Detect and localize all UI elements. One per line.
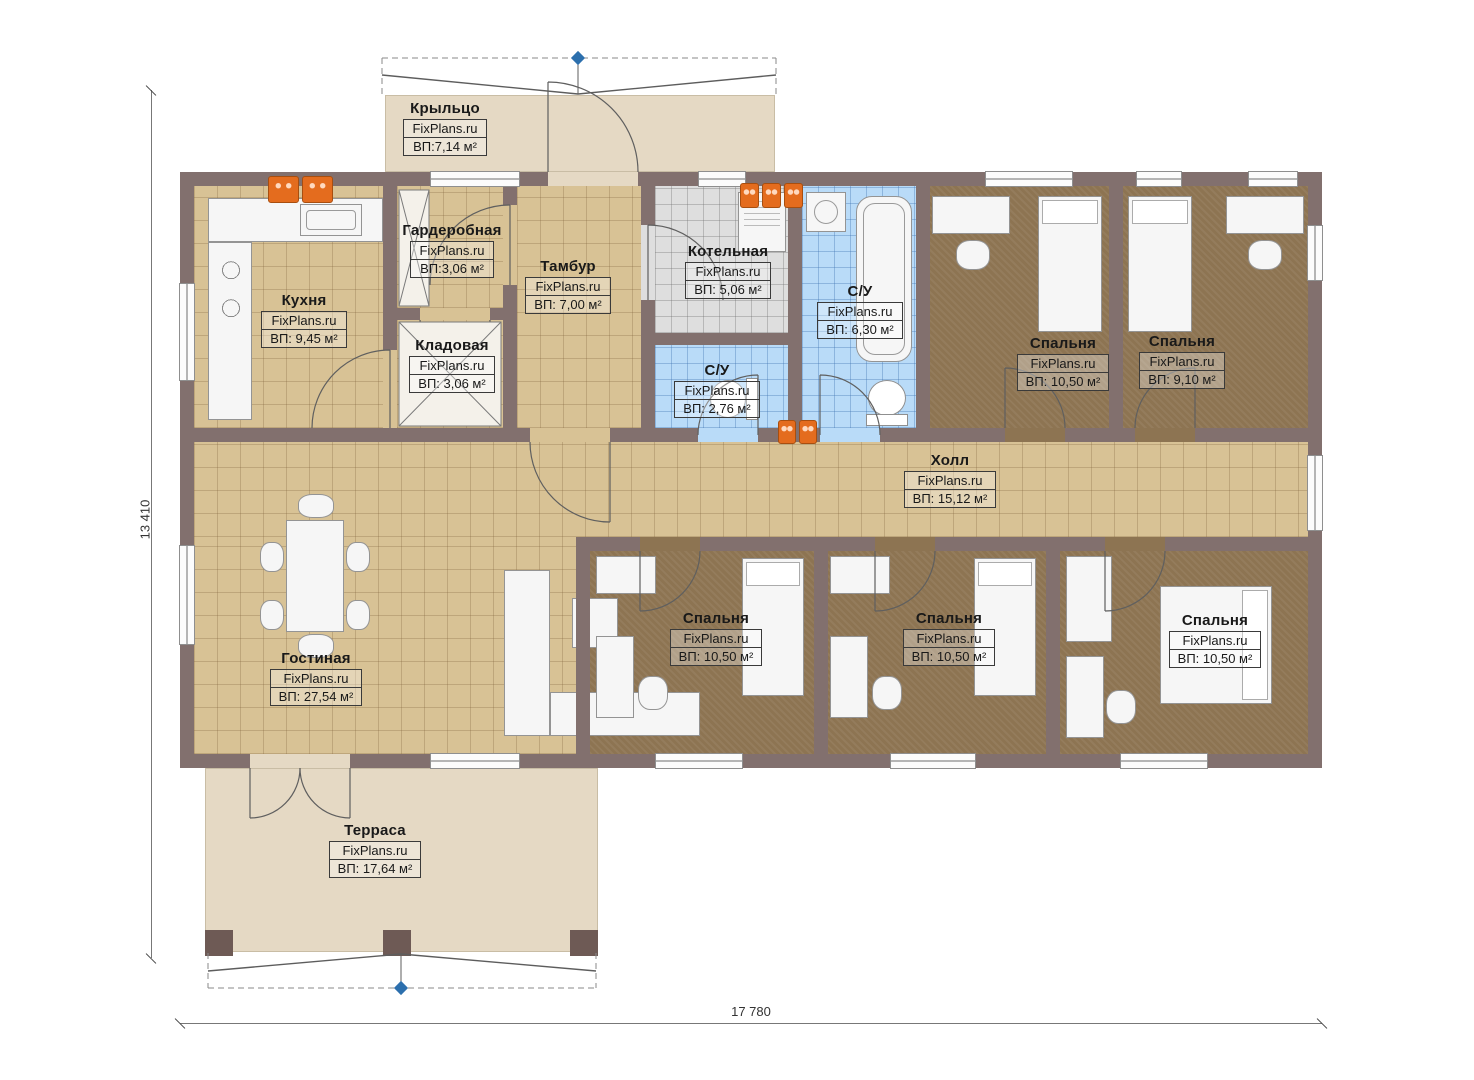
room-area: ВП: 7,00 м² bbox=[526, 295, 609, 313]
room-area: ВП:3,06 м² bbox=[411, 259, 492, 277]
radiator-icon-kitchen bbox=[268, 176, 333, 203]
desk-bedroom3 bbox=[596, 636, 634, 718]
room-name: Тамбур bbox=[540, 258, 596, 275]
radiator-cell bbox=[302, 176, 333, 203]
room-info-box: FixPlans.ru ВП: 6,30 м² bbox=[817, 302, 902, 339]
room-area: ВП: 27,54 м² bbox=[271, 687, 362, 705]
radiator-icon-boiler bbox=[740, 183, 803, 208]
window-top-bedroom1 bbox=[985, 171, 1073, 187]
wardrobe-bedroom5 bbox=[1066, 556, 1112, 642]
room-info-box: FixPlans.ru ВП: 9,10 м² bbox=[1139, 352, 1224, 389]
dining-chair-2 bbox=[260, 600, 284, 630]
door-opening-bedroom1 bbox=[1005, 428, 1065, 442]
room-name: Крыльцо bbox=[410, 100, 480, 117]
watermark: FixPlans.ru bbox=[818, 303, 901, 320]
door-opening-terrace bbox=[250, 754, 350, 768]
room-name: Спальня bbox=[1149, 333, 1215, 350]
chair-bedroom2 bbox=[1248, 240, 1282, 270]
room-info-box: FixPlans.ru ВП: 2,76 м² bbox=[674, 381, 759, 418]
door-opening-wc-small bbox=[698, 428, 758, 442]
room-info-box: FixPlans.ru ВП: 17,64 м² bbox=[329, 841, 422, 878]
watermark: FixPlans.ru bbox=[675, 382, 758, 399]
room-area: ВП:7,14 м² bbox=[404, 137, 485, 155]
terrace-post-center bbox=[383, 930, 411, 956]
room-area: ВП: 6,30 м² bbox=[818, 320, 901, 338]
room-label-bedroom5: Спальня FixPlans.ru ВП: 10,50 м² bbox=[1140, 612, 1290, 668]
room-name: Холл bbox=[931, 452, 969, 469]
room-area: ВП: 15,12 м² bbox=[905, 489, 996, 507]
desk-bedroom1 bbox=[932, 196, 1010, 234]
watermark: FixPlans.ru bbox=[1170, 632, 1261, 649]
toilet-icon-bathroom bbox=[868, 380, 906, 416]
radiator-icon-hall bbox=[778, 420, 817, 444]
terrace-post-right bbox=[570, 930, 598, 956]
watermark: FixPlans.ru bbox=[1140, 353, 1223, 370]
room-label-porch: Крыльцо FixPlans.ru ВП:7,14 м² bbox=[370, 100, 520, 156]
watermark: FixPlans.ru bbox=[271, 670, 362, 687]
room-name: Кухня bbox=[282, 292, 327, 309]
watermark: FixPlans.ru bbox=[404, 120, 485, 137]
room-info-box: FixPlans.ru ВП: 10,50 м² bbox=[903, 629, 996, 666]
window-bottom-bedroom3 bbox=[655, 753, 743, 769]
window-left-living bbox=[179, 545, 195, 645]
room-name: Гардеробная bbox=[402, 222, 501, 239]
watermark: FixPlans.ru bbox=[410, 357, 493, 374]
chair-bedroom3 bbox=[638, 676, 668, 710]
terrace-post-left bbox=[205, 930, 233, 956]
room-info-box: FixPlans.ru ВП: 10,50 м² bbox=[1169, 631, 1262, 668]
room-area: ВП: 17,64 м² bbox=[330, 859, 421, 877]
window-bottom-bedroom5 bbox=[1120, 753, 1208, 769]
window-top-boiler bbox=[698, 171, 746, 187]
room-label-living: Гостиная FixPlans.ru ВП: 27,54 м² bbox=[241, 650, 391, 706]
door-opening-porch bbox=[548, 172, 638, 186]
room-label-bedroom4: Спальня FixPlans.ru ВП: 10,50 м² bbox=[874, 610, 1024, 666]
watermark: FixPlans.ru bbox=[671, 630, 762, 647]
watermark: FixPlans.ru bbox=[904, 630, 995, 647]
door-opening-storeroom bbox=[420, 308, 490, 320]
chair-bedroom4 bbox=[872, 676, 902, 710]
door-opening-bedroom2 bbox=[1135, 428, 1195, 442]
dimension-line-horizontal bbox=[180, 1023, 1322, 1024]
room-area: ВП: 10,50 м² bbox=[671, 647, 762, 665]
window-left-kitchen bbox=[179, 283, 195, 381]
room-name: Терраса bbox=[344, 822, 406, 839]
room-label-hall: Холл FixPlans.ru ВП: 15,12 м² bbox=[875, 452, 1025, 508]
room-area: ВП: 5,06 м² bbox=[686, 280, 769, 298]
wall-living-bedroom3 bbox=[576, 551, 590, 754]
room-label-boiler: Котельная FixPlans.ru ВП: 5,06 м² bbox=[653, 243, 803, 299]
wall-bedrooms-top-divider bbox=[1109, 186, 1123, 428]
room-area: ВП: 9,45 м² bbox=[262, 329, 345, 347]
desk-bedroom4 bbox=[830, 636, 868, 718]
watermark: FixPlans.ru bbox=[905, 472, 996, 489]
dimension-label-horizontal: 17 780 bbox=[701, 1004, 801, 1019]
door-opening-bedroom4 bbox=[875, 537, 935, 551]
room-label-bedroom3: Спальня FixPlans.ru ВП: 10,50 м² bbox=[641, 610, 791, 666]
room-info-box: FixPlans.ru ВП: 10,50 м² bbox=[670, 629, 763, 666]
hall-floor bbox=[194, 442, 1308, 537]
room-label-bedroom2: Спальня FixPlans.ru ВП: 9,10 м² bbox=[1107, 333, 1257, 389]
room-area: ВП: 10,50 м² bbox=[1170, 649, 1261, 667]
radiator-cell bbox=[784, 183, 803, 208]
watermark: FixPlans.ru bbox=[330, 842, 421, 859]
room-area: ВП: 10,50 м² bbox=[1018, 372, 1109, 390]
room-area: ВП: 10,50 м² bbox=[904, 647, 995, 665]
dining-chair-4 bbox=[346, 600, 370, 630]
washing-machine-icon bbox=[806, 192, 846, 232]
dining-chair-5 bbox=[298, 494, 334, 518]
room-name: Спальня bbox=[1030, 335, 1096, 352]
bed-icon-bedroom1 bbox=[1038, 196, 1102, 332]
floor-plan: Крыльцо FixPlans.ru ВП:7,14 м² Гардеробн… bbox=[0, 0, 1474, 1080]
door-opening-bathroom bbox=[820, 428, 880, 442]
wardrobe-bedroom3 bbox=[596, 556, 656, 594]
window-bottom-living bbox=[430, 753, 520, 769]
watermark: FixPlans.ru bbox=[262, 312, 345, 329]
door-opening-bedroom5 bbox=[1105, 537, 1165, 551]
room-name: Кладовая bbox=[415, 337, 488, 354]
room-name: С/У bbox=[848, 283, 873, 300]
radiator-cell bbox=[799, 420, 817, 444]
window-top-bedroom2b bbox=[1248, 171, 1298, 187]
radiator-cell bbox=[740, 183, 759, 208]
radiator-cell bbox=[778, 420, 796, 444]
window-top-wardrobe bbox=[430, 171, 520, 187]
radiator-cell bbox=[762, 183, 781, 208]
room-name: Котельная bbox=[688, 243, 768, 260]
radiator-cell bbox=[268, 176, 299, 203]
toilet-tank-bathroom bbox=[866, 414, 908, 426]
room-info-box: FixPlans.ru ВП:3,06 м² bbox=[410, 241, 493, 278]
room-info-box: FixPlans.ru ВП: 15,12 м² bbox=[904, 471, 997, 508]
room-label-bathroom: С/У FixPlans.ru ВП: 6,30 м² bbox=[785, 283, 935, 339]
wall-bedroom3-4-divider bbox=[814, 551, 828, 754]
room-name: С/У bbox=[705, 362, 730, 379]
dining-chair-1 bbox=[260, 542, 284, 572]
room-label-kitchen: Кухня FixPlans.ru ВП: 9,45 м² bbox=[229, 292, 379, 348]
room-info-box: FixPlans.ru ВП: 9,45 м² bbox=[261, 311, 346, 348]
window-right-bedroom2 bbox=[1307, 225, 1323, 281]
room-label-terrace: Терраса FixPlans.ru ВП: 17,64 м² bbox=[300, 822, 450, 878]
room-info-box: FixPlans.ru ВП: 3,06 м² bbox=[409, 356, 494, 393]
desk-bedroom5 bbox=[1066, 656, 1104, 738]
door-opening-vestibule-hall bbox=[530, 428, 610, 442]
porch-roof-lines bbox=[382, 58, 776, 95]
room-area: ВП: 2,76 м² bbox=[675, 399, 758, 417]
room-label-vestibule: Тамбур FixPlans.ru ВП: 7,00 м² bbox=[493, 258, 643, 314]
room-info-box: FixPlans.ru ВП: 10,50 м² bbox=[1017, 354, 1110, 391]
watermark: FixPlans.ru bbox=[1018, 355, 1109, 372]
chair-bedroom5 bbox=[1106, 690, 1136, 724]
roof-marker-diamond-bottom bbox=[394, 981, 408, 995]
watermark: FixPlans.ru bbox=[686, 263, 769, 280]
terrace-roof-lines bbox=[208, 953, 596, 988]
door-opening-bedroom3 bbox=[640, 537, 700, 551]
wall-exterior-left bbox=[180, 172, 194, 768]
room-name: Спальня bbox=[683, 610, 749, 627]
sofa-vertical-section bbox=[504, 570, 550, 736]
room-area: ВП: 9,10 м² bbox=[1140, 370, 1223, 388]
dimension-label-vertical: 13 410 bbox=[138, 485, 153, 555]
room-info-box: FixPlans.ru ВП:7,14 м² bbox=[403, 119, 486, 156]
wall-bedroom4-5-divider bbox=[1046, 551, 1060, 754]
room-info-box: FixPlans.ru ВП: 5,06 м² bbox=[685, 262, 770, 299]
wardrobe-bedroom4 bbox=[830, 556, 890, 594]
bed-icon-bedroom2 bbox=[1128, 196, 1192, 332]
room-info-box: FixPlans.ru ВП: 27,54 м² bbox=[270, 669, 363, 706]
window-top-bedroom2a bbox=[1136, 171, 1182, 187]
room-label-storeroom: Кладовая FixPlans.ru ВП: 3,06 м² bbox=[377, 337, 527, 393]
watermark: FixPlans.ru bbox=[411, 242, 492, 259]
room-area: ВП: 3,06 м² bbox=[410, 374, 493, 392]
roof-marker-diamond-top bbox=[571, 51, 585, 65]
window-bottom-bedroom4 bbox=[890, 753, 976, 769]
wall-boiler-wc-divider bbox=[641, 333, 802, 345]
kitchen-sink-icon bbox=[300, 204, 362, 236]
dining-chair-3 bbox=[346, 542, 370, 572]
window-right-hall bbox=[1307, 455, 1323, 531]
room-info-box: FixPlans.ru ВП: 7,00 м² bbox=[525, 277, 610, 314]
room-name: Спальня bbox=[1182, 612, 1248, 629]
dining-table-icon bbox=[286, 520, 344, 632]
watermark: FixPlans.ru bbox=[526, 278, 609, 295]
room-name: Гостиная bbox=[281, 650, 350, 667]
room-name: Спальня bbox=[916, 610, 982, 627]
chair-bedroom1 bbox=[956, 240, 990, 270]
desk-bedroom2 bbox=[1226, 196, 1304, 234]
room-label-wc-small: С/У FixPlans.ru ВП: 2,76 м² bbox=[642, 362, 792, 418]
